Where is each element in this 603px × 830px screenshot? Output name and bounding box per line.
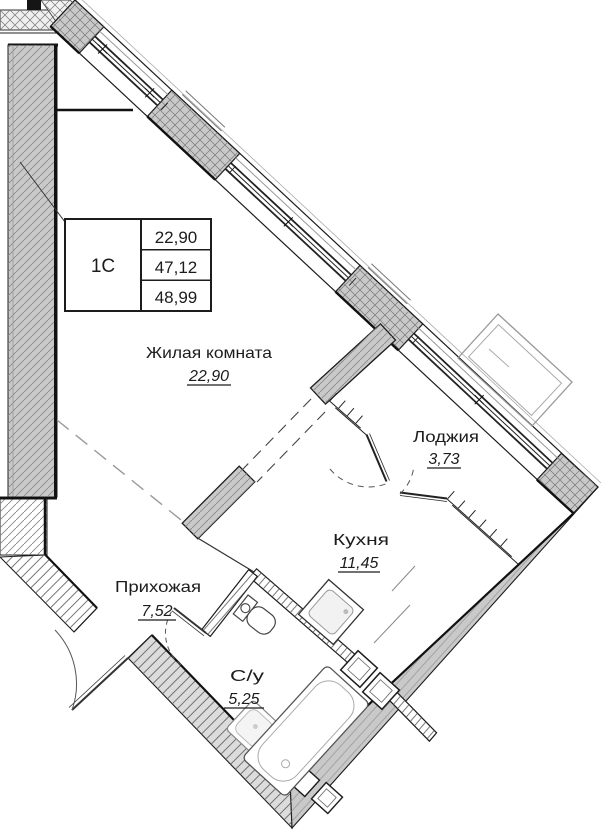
left-wall-lower [0,497,57,555]
sw-wall-upper [0,555,97,632]
room-name: Кухня [333,532,389,549]
room-label-hall: Прихожая 7,52 [115,579,201,620]
left-wall [8,45,57,497]
floor-plan-canvas: Жилая комната 22,90 Лоджия 3,73 Кухня 11… [0,0,603,830]
total-area-value: 48,99 [155,288,198,307]
room-area: 7,52 [141,603,172,620]
loggia-window [329,393,368,436]
room-area: 5,25 [228,691,259,708]
facade-fins [182,91,410,304]
room-area: 22,90 [188,368,229,385]
room-label-living: Жилая комната 22,90 [146,345,272,385]
kitchen-duct-marks [374,566,415,643]
toilet [233,595,279,639]
divider-opening-dashed [243,399,325,482]
loggia-window [446,491,519,564]
living-area-value: 22,90 [155,228,198,247]
room-label-wc: С/у 5,25 [224,668,264,708]
room-name: Жилая комната [146,345,272,362]
floor-plan: Жилая комната 22,90 Лоджия 3,73 Кухня 11… [0,0,603,830]
room-name: Прихожая [115,579,201,596]
living-hall-dashed-boundary [57,420,186,524]
room-name: Лоджия [413,429,479,446]
unit-label: 1С [91,256,115,277]
kitchen-sink [299,580,364,645]
room-label-kitchen: Кухня 11,45 [333,532,389,572]
room-divider [57,399,325,572]
room-name: С/у [230,668,264,685]
area-value: 47,12 [155,258,198,277]
room-area: 11,45 [340,555,379,572]
hall-kitchen-boundary [196,537,254,572]
room-area: 3,73 [428,451,459,468]
room-label-loggia: Лоджия 3,73 [413,429,479,468]
